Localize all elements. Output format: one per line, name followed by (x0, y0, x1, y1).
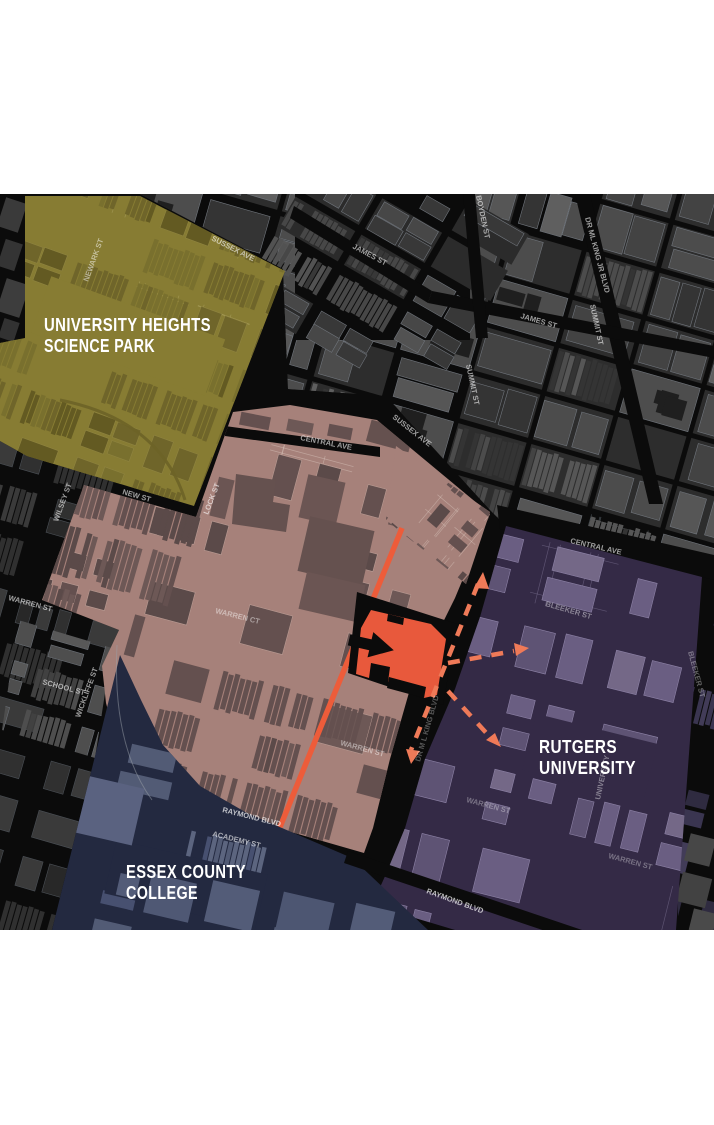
svg-text:RUTGERS: RUTGERS (539, 737, 617, 757)
svg-text:UNIVERSITY: UNIVERSITY (539, 758, 636, 778)
svg-text:ESSEX COUNTY: ESSEX COUNTY (126, 862, 246, 882)
svg-text:SCIENCE PARK: SCIENCE PARK (44, 336, 155, 356)
svg-text:UNIVERSITY HEIGHTS: UNIVERSITY HEIGHTS (44, 315, 211, 335)
svg-text:COLLEGE: COLLEGE (126, 883, 198, 903)
